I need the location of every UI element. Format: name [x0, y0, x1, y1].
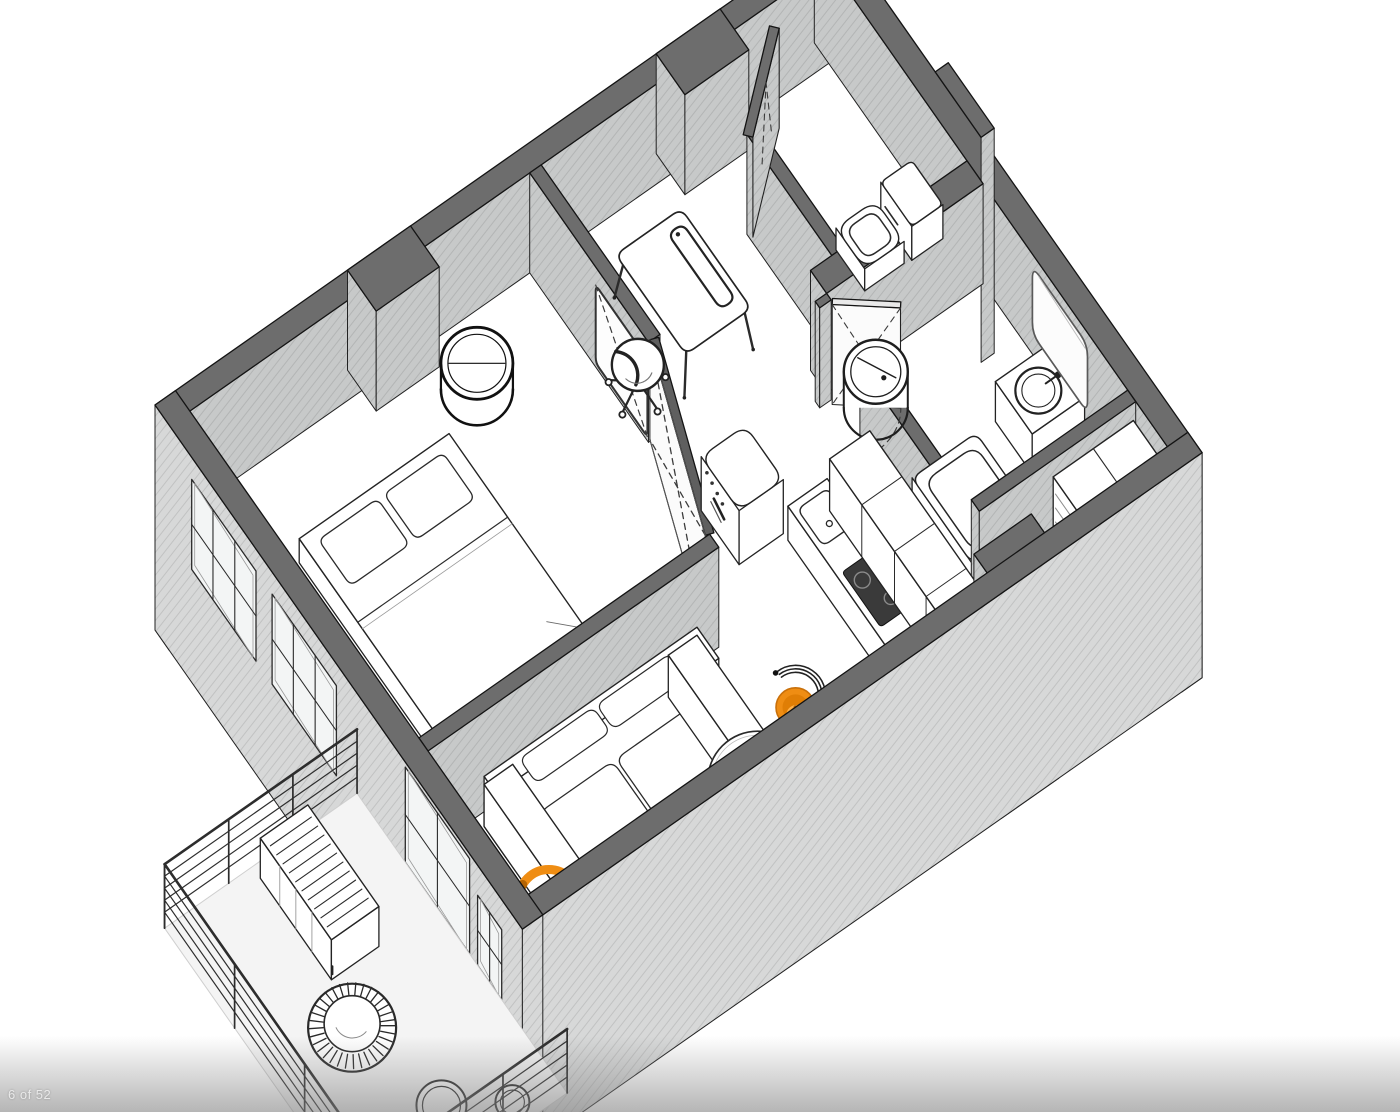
- slide-viewer: 6 of 52: [0, 0, 1400, 1112]
- floorplan-drawing: [0, 0, 1400, 1112]
- washing-machine: [844, 340, 908, 404]
- page-indicator: 6 of 52: [8, 1087, 51, 1102]
